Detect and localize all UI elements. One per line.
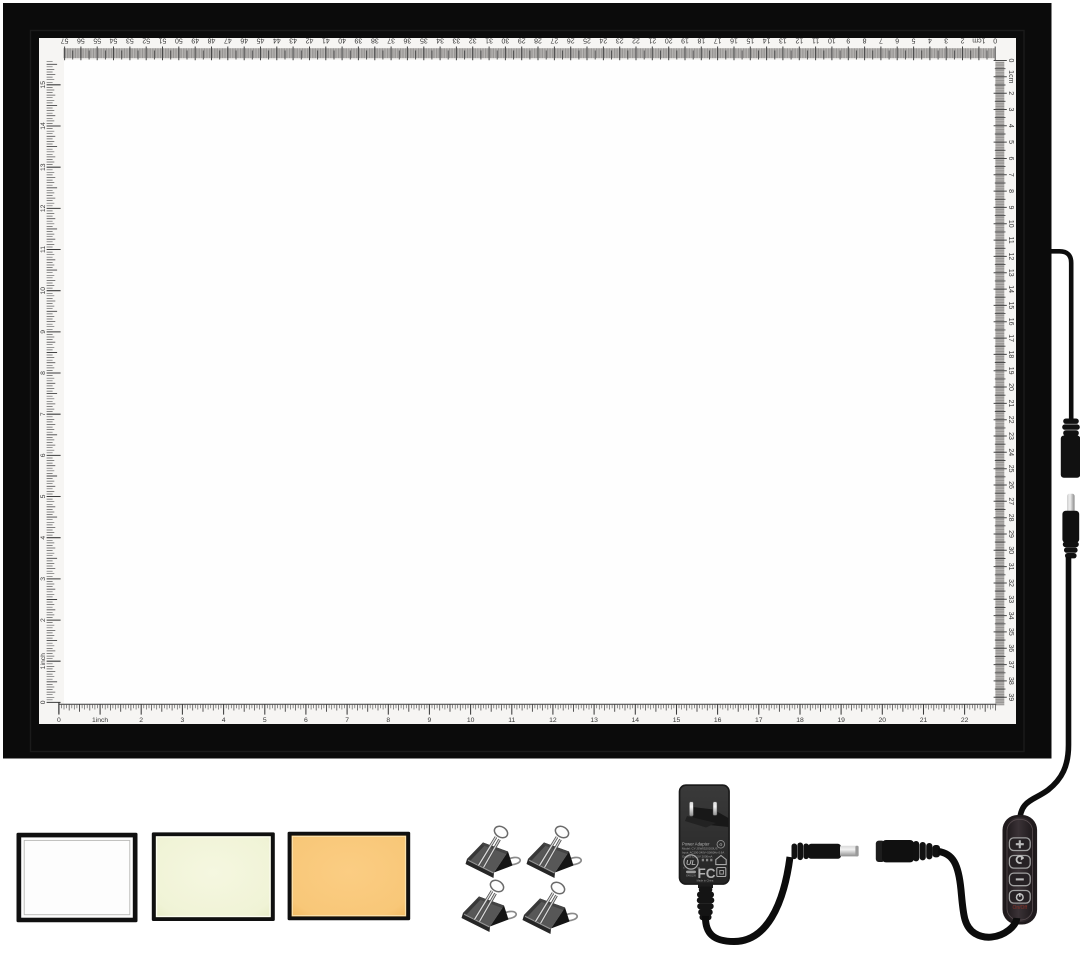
svg-text:14: 14 — [40, 122, 47, 130]
svg-text:9: 9 — [846, 37, 850, 44]
svg-text:56: 56 — [77, 37, 85, 44]
svg-text:28: 28 — [1007, 514, 1014, 522]
svg-text:3: 3 — [1007, 108, 1014, 112]
svg-text:32: 32 — [1007, 579, 1014, 587]
svg-text:48: 48 — [208, 37, 216, 44]
svg-text:24: 24 — [599, 37, 607, 44]
svg-text:6: 6 — [304, 717, 308, 724]
svg-text:4: 4 — [222, 717, 226, 724]
svg-text:6: 6 — [40, 453, 47, 457]
svg-text:13: 13 — [40, 163, 47, 171]
svg-text:5: 5 — [40, 494, 47, 498]
svg-text:49: 49 — [191, 37, 199, 44]
svg-text:28: 28 — [534, 37, 542, 44]
svg-text:32: 32 — [469, 37, 477, 44]
svg-text:22: 22 — [632, 37, 640, 44]
svg-text:7: 7 — [40, 412, 47, 416]
svg-text:♻: ♻ — [719, 842, 723, 847]
svg-text:51: 51 — [159, 37, 167, 44]
svg-text:50: 50 — [175, 37, 183, 44]
svg-text:10: 10 — [828, 37, 836, 44]
svg-text:23: 23 — [1007, 432, 1014, 440]
svg-text:22: 22 — [961, 717, 969, 724]
svg-text:37: 37 — [387, 37, 395, 44]
svg-text:2: 2 — [139, 717, 143, 724]
svg-text:14: 14 — [632, 717, 640, 724]
svg-text:37: 37 — [1007, 661, 1014, 669]
svg-text:0: 0 — [993, 37, 997, 44]
svg-text:19: 19 — [1007, 367, 1014, 375]
svg-text:26: 26 — [1007, 481, 1014, 489]
svg-text:24: 24 — [1007, 448, 1014, 456]
svg-text:12: 12 — [795, 37, 803, 44]
svg-text:16: 16 — [714, 717, 722, 724]
svg-text:4: 4 — [1007, 124, 1014, 128]
svg-text:42: 42 — [306, 37, 314, 44]
svg-text:17: 17 — [1007, 334, 1014, 342]
svg-text:30: 30 — [1007, 546, 1014, 554]
svg-text:10: 10 — [1007, 220, 1014, 228]
svg-text:0: 0 — [1007, 59, 1014, 63]
svg-text:13: 13 — [1007, 269, 1014, 277]
svg-text:12: 12 — [40, 204, 47, 212]
svg-text:7: 7 — [345, 717, 349, 724]
svg-text:55: 55 — [93, 37, 101, 44]
svg-text:43: 43 — [289, 37, 297, 44]
svg-text:11: 11 — [812, 37, 819, 44]
svg-text:7: 7 — [879, 37, 883, 44]
svg-text:17: 17 — [714, 37, 722, 44]
svg-text:25: 25 — [583, 37, 591, 44]
svg-text:14: 14 — [1007, 285, 1014, 293]
svg-text:21: 21 — [920, 717, 928, 724]
svg-text:54: 54 — [110, 37, 118, 44]
svg-text:29: 29 — [1007, 530, 1014, 538]
svg-text:34: 34 — [1007, 612, 1014, 620]
svg-text:27: 27 — [1007, 497, 1014, 505]
svg-text:0: 0 — [40, 700, 47, 704]
svg-text:16: 16 — [730, 37, 738, 44]
svg-text:20: 20 — [1007, 383, 1014, 391]
svg-text:21: 21 — [648, 37, 656, 44]
svg-text:38: 38 — [1007, 677, 1014, 685]
svg-text:9: 9 — [1007, 205, 1014, 209]
svg-text:17: 17 — [755, 717, 763, 724]
svg-text:14: 14 — [763, 37, 771, 44]
svg-text:0: 0 — [57, 717, 61, 724]
svg-text:15: 15 — [746, 37, 754, 44]
svg-text:5: 5 — [912, 37, 916, 44]
svg-text:3: 3 — [944, 37, 948, 44]
svg-text:22: 22 — [1007, 416, 1014, 424]
svg-text:8: 8 — [1007, 189, 1014, 193]
svg-text:16: 16 — [1007, 318, 1014, 326]
svg-text:53: 53 — [126, 37, 134, 44]
svg-text:11: 11 — [40, 246, 47, 253]
svg-text:26: 26 — [567, 37, 575, 44]
svg-text:15: 15 — [40, 81, 47, 89]
svg-text:30: 30 — [501, 37, 509, 44]
svg-text:31: 31 — [485, 37, 493, 44]
svg-text:12: 12 — [549, 717, 557, 724]
svg-text:1cm: 1cm — [1007, 70, 1014, 83]
svg-text:13: 13 — [590, 717, 598, 724]
svg-text:18: 18 — [1007, 351, 1014, 359]
svg-text:3: 3 — [181, 717, 185, 724]
svg-text:33: 33 — [452, 37, 460, 44]
svg-text:52: 52 — [142, 37, 150, 44]
svg-text:5: 5 — [1007, 140, 1014, 144]
svg-text:8: 8 — [863, 37, 867, 44]
svg-text:12: 12 — [1007, 253, 1014, 261]
svg-text:36: 36 — [1007, 644, 1014, 652]
svg-text:2: 2 — [40, 618, 47, 622]
svg-text:3: 3 — [40, 577, 47, 581]
svg-text:57: 57 — [61, 37, 69, 44]
svg-text:35: 35 — [420, 37, 428, 44]
svg-text:UL: UL — [686, 858, 696, 867]
svg-text:33: 33 — [1007, 595, 1014, 603]
svg-text:19: 19 — [681, 37, 689, 44]
svg-text:29: 29 — [518, 37, 526, 44]
svg-text:39: 39 — [354, 37, 362, 44]
svg-text:27: 27 — [550, 37, 558, 44]
svg-text:7: 7 — [1007, 173, 1014, 177]
svg-text:2: 2 — [1007, 91, 1014, 95]
svg-text:1inch: 1inch — [40, 653, 47, 669]
svg-text:2: 2 — [960, 37, 964, 44]
svg-text:1inch: 1inch — [92, 717, 108, 724]
svg-text:18: 18 — [796, 717, 804, 724]
svg-text:23: 23 — [616, 37, 624, 44]
svg-text:40: 40 — [338, 37, 346, 44]
svg-text:FC: FC — [698, 866, 716, 881]
svg-text:18: 18 — [697, 37, 705, 44]
svg-text:36: 36 — [403, 37, 411, 44]
svg-text:8: 8 — [386, 717, 390, 724]
svg-text:11: 11 — [1007, 236, 1014, 243]
svg-text:10: 10 — [467, 717, 475, 724]
svg-text:9: 9 — [428, 717, 432, 724]
svg-text:13: 13 — [779, 37, 787, 44]
svg-text:4: 4 — [928, 37, 932, 44]
svg-text:10: 10 — [40, 287, 47, 295]
svg-text:5: 5 — [263, 717, 267, 724]
svg-text:15: 15 — [1007, 302, 1014, 310]
svg-text:44: 44 — [273, 37, 281, 44]
svg-text:21: 21 — [1007, 400, 1014, 408]
svg-text:6: 6 — [895, 37, 899, 44]
svg-text:9: 9 — [40, 330, 47, 334]
svg-text:39: 39 — [1007, 693, 1014, 701]
svg-text:15: 15 — [673, 717, 681, 724]
svg-text:19: 19 — [837, 717, 845, 724]
svg-text:41: 41 — [322, 37, 330, 44]
svg-text:20: 20 — [665, 37, 673, 44]
svg-text:On/Off: On/Off — [1012, 905, 1027, 911]
svg-text:45: 45 — [257, 37, 265, 44]
svg-text:47: 47 — [224, 37, 232, 44]
svg-text:31: 31 — [1007, 563, 1014, 571]
svg-text:Made in China: Made in China — [697, 879, 714, 883]
svg-text:4: 4 — [40, 536, 47, 540]
svg-text:8: 8 — [40, 371, 47, 375]
svg-text:20: 20 — [879, 717, 887, 724]
svg-text:1cm: 1cm — [972, 37, 985, 44]
svg-text:34: 34 — [436, 37, 444, 44]
svg-text:E465109: E465109 — [686, 874, 696, 877]
svg-text:46: 46 — [240, 37, 248, 44]
svg-text:25: 25 — [1007, 465, 1014, 473]
svg-text:6: 6 — [1007, 157, 1014, 161]
svg-text:11: 11 — [508, 717, 515, 724]
svg-text:38: 38 — [371, 37, 379, 44]
svg-text:35: 35 — [1007, 628, 1014, 636]
